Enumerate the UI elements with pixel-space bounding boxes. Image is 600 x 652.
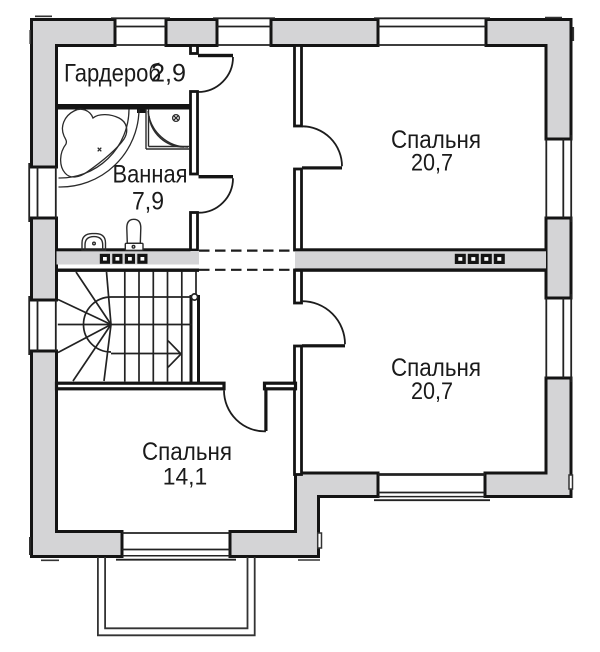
svg-text:Ванная: Ванная [113,161,188,189]
svg-text:7,9: 7,9 [132,188,164,216]
svg-text:14,1: 14,1 [163,464,208,491]
svg-text:Гардероб: Гардероб [64,60,161,88]
svg-text:Спальня: Спальня [142,438,232,466]
svg-text:2,9: 2,9 [151,60,186,88]
svg-text:20,7: 20,7 [411,378,453,405]
svg-text:20,7: 20,7 [411,150,453,177]
